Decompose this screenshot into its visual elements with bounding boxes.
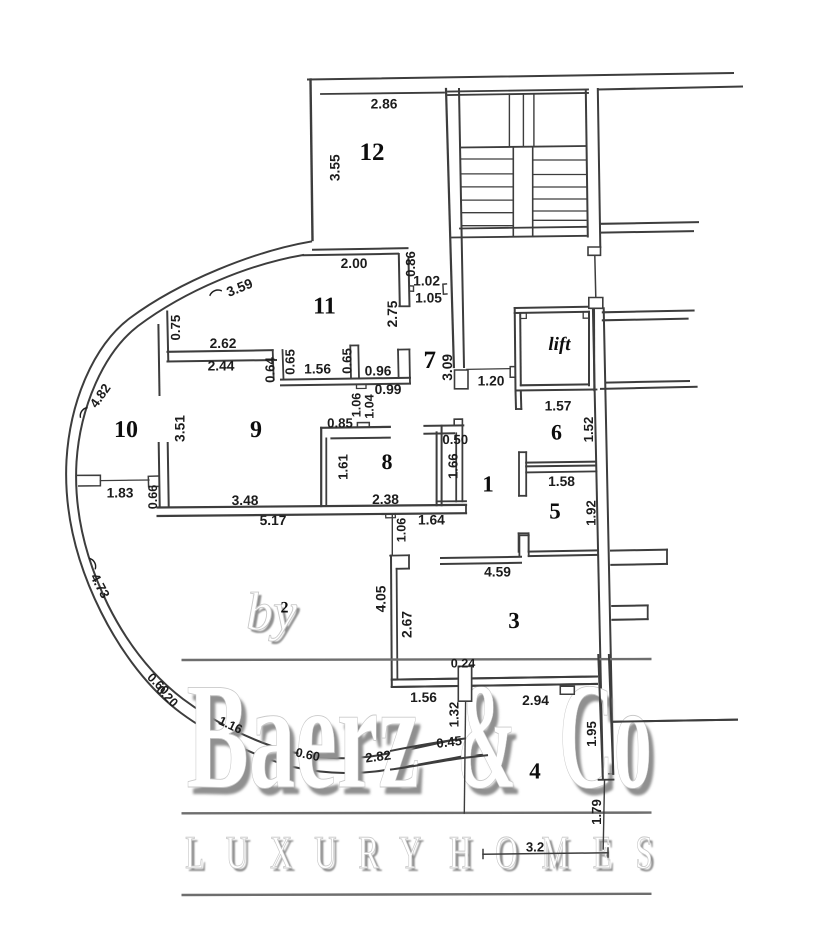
svg-text:lift: lift [548,334,571,355]
svg-text:Baerz: Baerz [187,652,420,820]
svg-text:2.38: 2.38 [372,492,399,507]
svg-text:10: 10 [114,417,138,443]
svg-text:1.57: 1.57 [545,399,572,414]
svg-text:4: 4 [529,758,541,783]
svg-text:0.64: 0.64 [262,357,277,383]
svg-text:1.79: 1.79 [589,799,604,825]
svg-text:1.83: 1.83 [107,486,134,501]
svg-text:2.62: 2.62 [210,336,237,351]
svg-text:12: 12 [360,139,385,166]
svg-text:1.04: 1.04 [362,394,376,419]
svg-text:7: 7 [423,347,436,374]
svg-text:1.92: 1.92 [583,500,598,526]
svg-text:0.45: 0.45 [435,733,462,751]
svg-text:0.24: 0.24 [451,656,476,670]
svg-text:2.44: 2.44 [208,359,235,374]
svg-text:1.58: 1.58 [548,474,575,489]
svg-text:1.32: 1.32 [446,702,461,728]
svg-text:3.55: 3.55 [328,154,343,181]
svg-text:11: 11 [313,294,336,320]
svg-text:4.05: 4.05 [373,585,388,612]
svg-text:1.95: 1.95 [584,721,599,747]
svg-text:3.2: 3.2 [526,839,544,854]
svg-text:6: 6 [551,420,562,445]
svg-text:by: by [246,582,297,642]
svg-text:1.61: 1.61 [335,454,350,480]
svg-text:3: 3 [508,608,520,633]
svg-text:1.05: 1.05 [415,290,442,305]
svg-text:5: 5 [549,498,561,523]
svg-text:1.64: 1.64 [418,512,445,527]
svg-text:LUXURY: LUXURY [185,827,443,879]
svg-text:2.00: 2.00 [341,256,368,271]
svg-text:0.96: 0.96 [365,364,392,379]
svg-text:0.65: 0.65 [339,348,354,374]
svg-text:1.56: 1.56 [304,362,331,377]
svg-text:1.02: 1.02 [413,274,440,289]
svg-text:2.86: 2.86 [371,97,398,112]
svg-text:0.50: 0.50 [442,432,468,447]
svg-text:9: 9 [250,417,262,443]
svg-text:1.52: 1.52 [581,417,596,443]
svg-text:4.59: 4.59 [484,565,511,580]
svg-text:2.67: 2.67 [399,611,414,638]
svg-text:1.66: 1.66 [445,453,460,479]
svg-text:1.56: 1.56 [410,690,437,705]
svg-text:5.17: 5.17 [260,513,287,528]
svg-text:0.66: 0.66 [146,485,160,510]
svg-text:2.82: 2.82 [364,747,391,765]
svg-text:3.48: 3.48 [232,493,259,508]
svg-text:3.51: 3.51 [173,415,188,442]
svg-text:0.75: 0.75 [168,315,183,341]
svg-text:2.94: 2.94 [522,693,549,708]
svg-text:8: 8 [382,449,393,474]
svg-text:3.09: 3.09 [440,354,455,381]
svg-text:0.65: 0.65 [282,349,297,375]
svg-text:2: 2 [281,600,289,617]
svg-text:1.20: 1.20 [478,373,505,388]
svg-text:0.99: 0.99 [375,382,402,397]
svg-text:1: 1 [482,471,494,496]
svg-text:1.06: 1.06 [395,518,409,543]
svg-text:2.75: 2.75 [385,300,400,327]
